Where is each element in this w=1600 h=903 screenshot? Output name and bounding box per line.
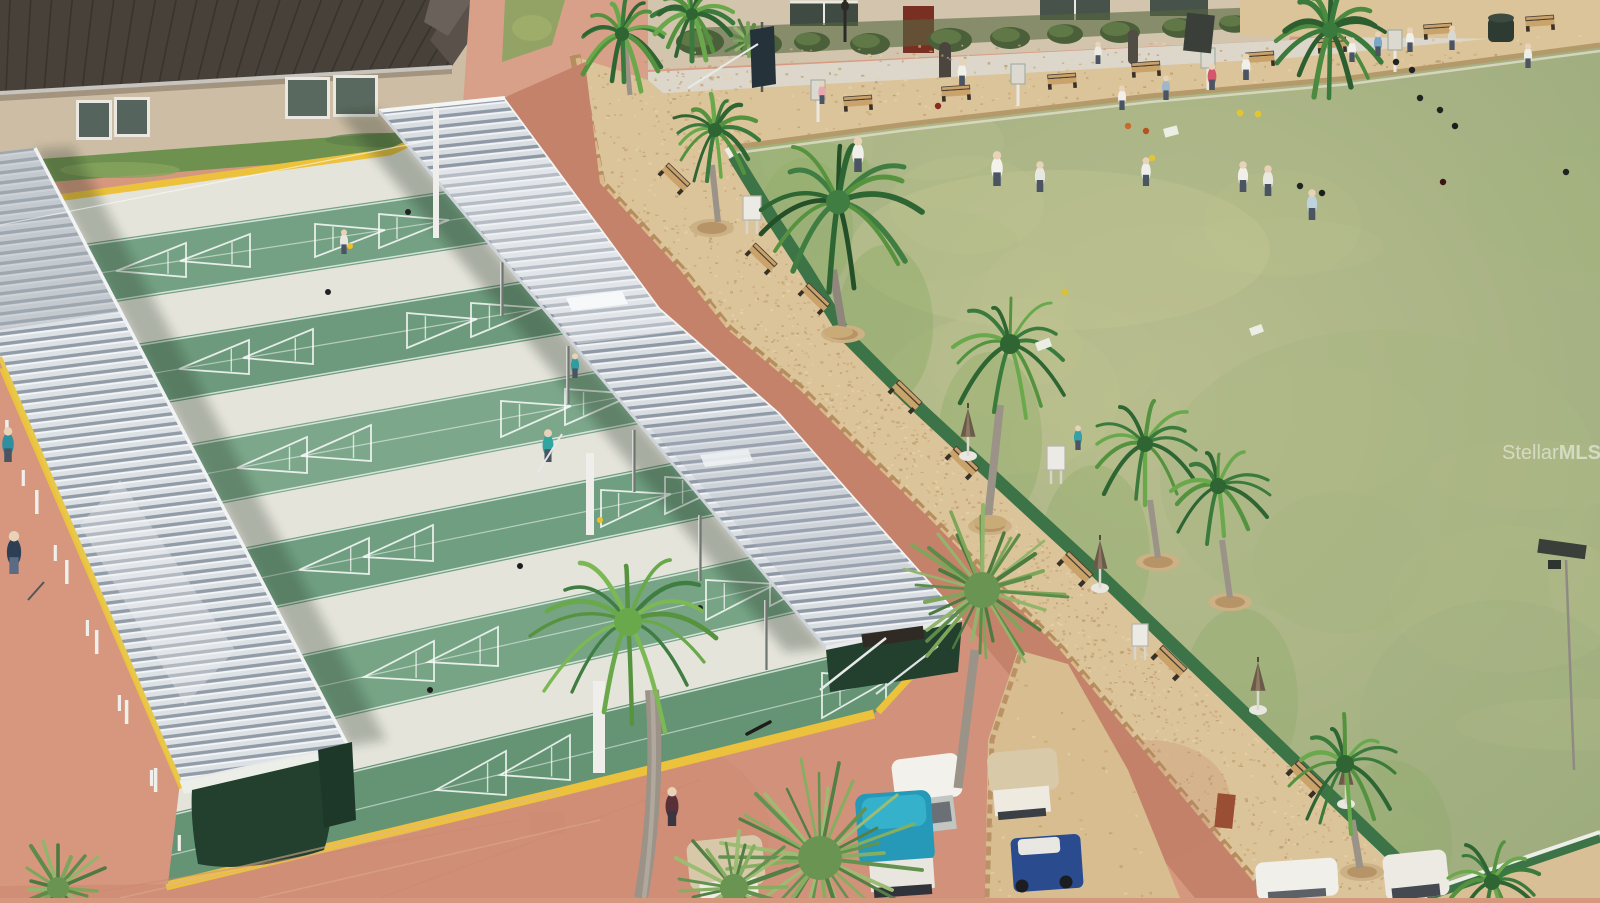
svg-text:StellarMLS: StellarMLS xyxy=(1502,442,1600,464)
